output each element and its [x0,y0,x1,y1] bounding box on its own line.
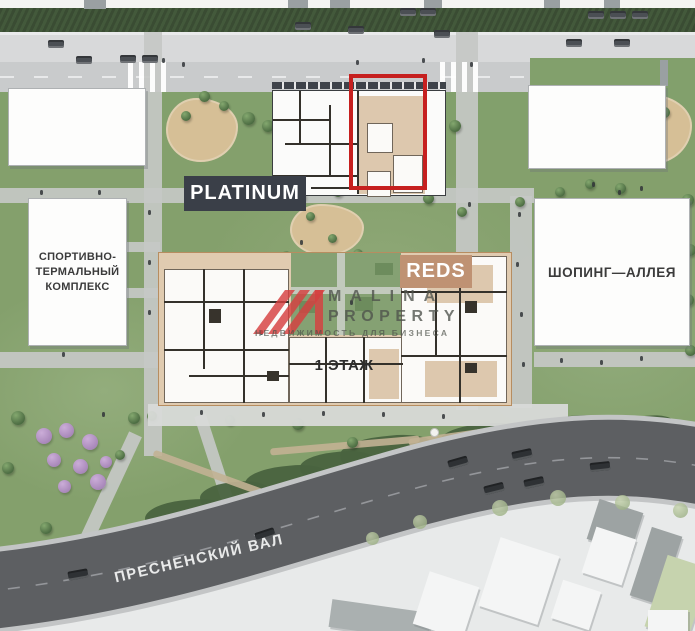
pedestrian-dot [40,190,43,195]
pedestrian-dot [148,210,151,215]
site-plan-map: СПОРТИВНО- ТЕРМАЛЬНЫЙ КОМПЛЕКС ШОПИНГ—АЛ… [0,0,695,631]
platinum-label: PLATINUM [184,176,306,211]
tree-icon [615,495,630,510]
pedestrian-dot [520,312,523,317]
pedestrian-dot [618,190,621,195]
pedestrian-dot [470,62,473,67]
pedestrian-dot [592,182,595,187]
pedestrian-dot [162,58,165,63]
driving-car [447,455,469,469]
pedestrian-dot [322,411,325,416]
south-building [648,610,688,631]
pedestrian-dot [98,190,101,195]
tree-icon [550,490,566,506]
pedestrian-dot [102,412,105,417]
pedestrian-dot [262,412,265,417]
south-building [478,537,559,625]
pedestrian-dot [516,262,519,267]
pedestrian-dot [182,62,185,67]
driving-car [523,476,544,489]
tree-icon [413,515,427,529]
pedestrian-dot [522,362,525,367]
pedestrian-dot [356,60,359,65]
tree-icon [673,503,688,518]
south-building [551,580,601,630]
pedestrian-dot [442,414,445,419]
watermark: MALINA PROPERTY НЕДВИЖИМОСТЬ ДЛЯ БИЗНЕСА [255,284,480,342]
pedestrian-dot [62,352,65,357]
driving-car [511,448,532,461]
tree-icon [492,500,508,516]
south-building [413,571,479,631]
pedestrian-dot [600,360,603,365]
highlighted-unit-outline [349,74,427,190]
driving-car [590,461,611,472]
pedestrian-dot [148,260,151,265]
pedestrian-dot [148,310,151,315]
tree-icon [366,532,379,545]
pedestrian-dot [382,412,385,417]
pedestrian-dot [640,356,643,361]
watermark-brand-bottom: PROPERTY [328,308,460,326]
pedestrian-dot [422,58,425,63]
watermark-brand-top: MALINA [328,288,444,306]
driving-car [67,568,88,580]
pedestrian-dot [560,358,563,363]
pedestrian-dot [640,186,643,191]
pedestrian-dot [300,240,303,245]
pedestrian-dot [468,202,471,207]
pedestrian-dot [518,212,521,217]
driving-car [483,482,505,496]
pedestrian-dot [200,410,203,415]
watermark-tagline: НЕДВИЖИМОСТЬ ДЛЯ БИЗНЕСА [255,328,449,338]
